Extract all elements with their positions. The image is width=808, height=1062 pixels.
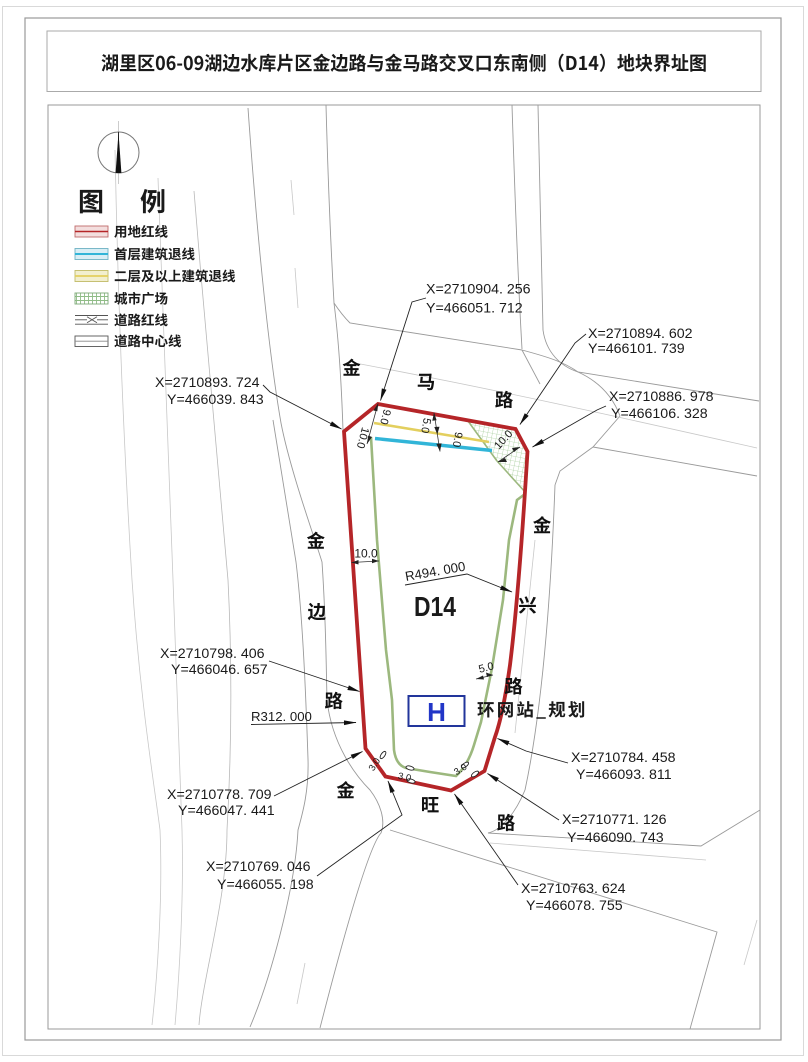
svg-text:H: H xyxy=(427,697,446,727)
svg-text:R312. 000: R312. 000 xyxy=(251,709,312,724)
svg-text:X=2710904. 256: X=2710904. 256 xyxy=(426,282,531,298)
svg-text:X=2710784. 458: X=2710784. 458 xyxy=(571,750,676,766)
svg-text:Y=466039. 843: Y=466039. 843 xyxy=(167,392,264,408)
svg-text:X=2710886. 978: X=2710886. 978 xyxy=(609,389,714,405)
svg-text:Y=466093. 811: Y=466093. 811 xyxy=(576,767,672,783)
svg-text:5.0: 5.0 xyxy=(418,417,432,434)
svg-text:5.0: 5.0 xyxy=(477,660,495,675)
svg-text:10.0: 10.0 xyxy=(354,426,371,450)
svg-text:X=2710771. 126: X=2710771. 126 xyxy=(562,812,667,828)
svg-text:Y=466078. 755: Y=466078. 755 xyxy=(526,898,623,914)
svg-text:X=2710763. 624: X=2710763. 624 xyxy=(521,881,626,897)
svg-text:10.0: 10.0 xyxy=(354,547,378,561)
svg-text:3.0: 3.0 xyxy=(397,771,412,785)
svg-text:X=2710769. 046: X=2710769. 046 xyxy=(206,859,311,875)
svg-text:Y=466101. 739: Y=466101. 739 xyxy=(588,341,685,357)
svg-text:X=2710894. 602: X=2710894. 602 xyxy=(588,326,693,342)
svg-text:Y=466055. 198: Y=466055. 198 xyxy=(217,877,314,893)
svg-text:Y=466047. 441: Y=466047. 441 xyxy=(178,803,275,819)
svg-text:X=2710798. 406: X=2710798. 406 xyxy=(160,646,265,662)
svg-text:D14: D14 xyxy=(414,591,456,622)
svg-text:R494. 000: R494. 000 xyxy=(404,559,467,584)
svg-text:Y=466046. 657: Y=466046. 657 xyxy=(171,662,268,678)
svg-text:Y=466106. 328: Y=466106. 328 xyxy=(611,406,708,422)
svg-text:9.0: 9.0 xyxy=(450,431,464,448)
svg-text:9.0: 9.0 xyxy=(377,408,393,426)
svg-text:X=2710778. 709: X=2710778. 709 xyxy=(167,787,272,803)
svg-text:Y=466051. 712: Y=466051. 712 xyxy=(426,301,523,317)
svg-text:Y=466090. 743: Y=466090. 743 xyxy=(567,830,664,846)
svg-text:X=2710893. 724: X=2710893. 724 xyxy=(155,375,260,391)
